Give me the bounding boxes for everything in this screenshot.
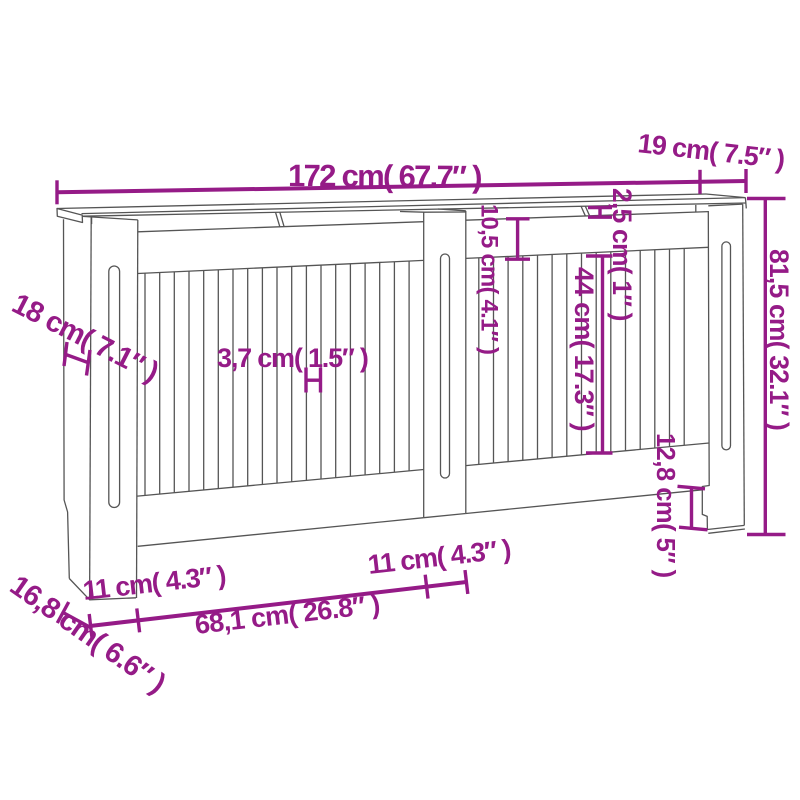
svg-text:81,5 cm( 32.1″ ): 81,5 cm( 32.1″ ) [764, 249, 794, 430]
svg-text:10,5 cm( 4.1″ ): 10,5 cm( 4.1″ ) [476, 204, 503, 354]
svg-text:44 cm( 17.3″ ): 44 cm( 17.3″ ) [569, 267, 599, 431]
svg-text:12,8 cm( 5″ ): 12,8 cm( 5″ ) [651, 433, 679, 578]
svg-text:3,7 cm( 1.5″ ): 3,7 cm( 1.5″ ) [217, 343, 368, 373]
svg-text:172 cm( 67.7″ ): 172 cm( 67.7″ ) [288, 158, 481, 194]
